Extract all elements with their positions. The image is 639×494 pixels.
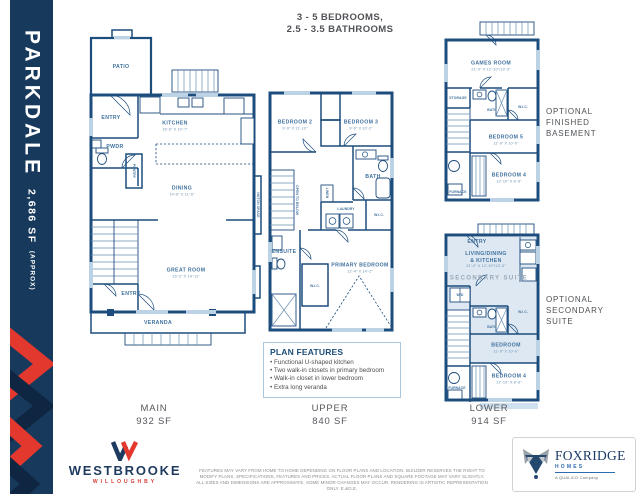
floor-name: MAIN xyxy=(114,402,194,415)
foxridge-homes-label: HOMES xyxy=(555,464,615,473)
plan-area-title: 2,686 SF (APPROX) xyxy=(26,189,38,291)
room-name: BEDROOM 4 xyxy=(492,172,527,179)
exterior-stairs xyxy=(480,22,534,35)
plan-name-title: PARKDALE xyxy=(20,30,44,177)
room-label-pantry: PANTRY xyxy=(132,164,136,178)
room-label-bath: BATH xyxy=(365,174,380,181)
room-label-open-to-below: OPEN TO BELOW xyxy=(295,185,299,215)
feature-item: Functional U-shaped kitchen xyxy=(270,359,394,367)
room-label-bedroom: BEDROOM 11'-9" X 10'-0" xyxy=(491,342,521,353)
room-label-wic: W.I.C. xyxy=(374,213,384,217)
qualico-label: A QUALICO Company xyxy=(555,475,626,480)
room-label-patio: PATIO xyxy=(113,64,130,71)
room-label-ensuite: ENSUITE xyxy=(272,249,297,256)
optional-line: SUITE xyxy=(546,316,604,327)
room-dims: 16'-2" X 14'-11" xyxy=(167,274,206,279)
optional-line: FINISHED xyxy=(546,117,596,128)
room-dims: 12'-4" X 14'-2" xyxy=(331,269,388,274)
room-label-hutch-space: HUTCH SPACE xyxy=(256,192,260,217)
room-dims: 21'-0" X 12'-10"/13'-3" xyxy=(471,67,511,72)
room-label-bedroom4: BEDROOM 4 12'-10" X 8'-6" xyxy=(492,373,527,384)
room-label-entry: ENTRY xyxy=(101,115,120,122)
room-dims: 9'-9" X 11'-10" xyxy=(278,126,313,131)
stairwell xyxy=(446,310,470,366)
room-label-storage: STORAGE xyxy=(449,96,466,100)
interior-stairs xyxy=(91,220,138,284)
foxridge-fox-icon xyxy=(522,448,550,482)
feature-item: Walk-in closet in lower bedroom xyxy=(270,375,394,383)
room-dims: 21'-0" X 12'-10"/13'-3" xyxy=(465,264,506,269)
room-label-bath: BATH xyxy=(487,108,497,112)
room-label-veranda: VERANDA xyxy=(144,320,172,327)
secondary-suite-plan: ENTRY LIVING/DINING & KITCHEN 21'-0" X 1… xyxy=(442,222,542,412)
room-dims: 12'-10" X 8'-6" xyxy=(492,179,527,184)
sidebar-band: PARKDALE 2,686 SF (APPROX) xyxy=(10,0,53,494)
room-label-laundry: LAUNDRY xyxy=(337,207,354,211)
floor-name: LOWER xyxy=(449,402,529,415)
laundry-machines xyxy=(326,214,353,228)
bedrooms-line: 3 - 5 BEDROOMS, xyxy=(248,12,432,24)
door-arcs xyxy=(104,95,154,310)
room-label-living-dining-kitchen: LIVING/DINING & KITCHEN 21'-0" X 12'-10"… xyxy=(465,251,506,269)
plan-features-box: PLAN FEATURES Functional U-shaped kitche… xyxy=(263,342,401,398)
optional-line: BASEMENT xyxy=(546,128,596,139)
ceiling-dash-lines xyxy=(326,276,392,328)
chevron-decoration xyxy=(10,328,53,494)
room-dims: 16'-6" X 10'-7" xyxy=(162,127,188,132)
westbrooke-w-icon xyxy=(106,440,144,461)
room-label-primary-bedroom: PRIMARY BEDROOM 12'-4" X 14'-2" xyxy=(331,262,388,273)
room-dims: 9'-9" X 10'-2" xyxy=(344,126,379,131)
main-floor-plan: PATIO ENTRY KITCHEN 16'-6" X 10'-7" PWDR… xyxy=(78,26,264,394)
plan-area-approx: (APPROX) xyxy=(29,251,36,291)
optional-basement-label: OPTIONAL FINISHED BASEMENT xyxy=(546,106,596,139)
room-label-dining: DINING 14'-6" X 11'-6" xyxy=(169,185,194,196)
plan-features-list: Functional U-shaped kitchen Two walk-in … xyxy=(270,359,394,392)
optional-suite-label: OPTIONAL SECONDARY SUITE xyxy=(546,294,604,327)
bedroom4-closet xyxy=(472,366,486,398)
westbrooke-wordmark: WESTBROOKE xyxy=(58,463,192,478)
exterior-stairs xyxy=(478,224,534,235)
foxridge-text-block: FOXRIDGE HOMES A QUALICO Company xyxy=(555,449,626,481)
stairwell xyxy=(446,108,470,152)
room-label-kitchen: KITCHEN 16'-6" X 10'-7" xyxy=(162,120,188,131)
room-name: BEDROOM 4 xyxy=(492,373,527,380)
room-label-pwdr: PWDR xyxy=(106,144,123,151)
room-label-wic: W.I.C. xyxy=(518,105,528,109)
room-name: BEDROOM 2 xyxy=(278,119,313,126)
room-dims: 12'-10" X 8'-6" xyxy=(492,380,527,385)
room-label-wic: W.I.C. xyxy=(518,310,528,314)
bathrooms-line: 2.5 - 3.5 BATHROOMS xyxy=(248,24,432,36)
room-name: GAMES ROOM xyxy=(471,60,511,67)
willoughby-label: WILLOUGHBY xyxy=(58,479,192,485)
upper-floor-area: UPPER 840 SF xyxy=(290,402,370,428)
room-label-furnace: FURNACE xyxy=(448,386,465,390)
foxridge-wordmark: FOXRIDGE xyxy=(555,449,626,463)
room-name: DINING xyxy=(169,185,194,192)
room-label-games-room: GAMES ROOM 21'-0" X 12'-10"/13'-3" xyxy=(471,60,511,71)
floor-area: 932 SF xyxy=(114,415,194,428)
room-label-bedroom3: BEDROOM 3 9'-9" X 10'-2" xyxy=(344,119,379,130)
floor-area: 914 SF xyxy=(449,415,529,428)
bedroom4-closet xyxy=(472,156,486,196)
room-name: BEDROOM 5 xyxy=(489,134,524,141)
room-label-bedroom4: BEDROOM 4 12'-10" X 8'-6" xyxy=(492,172,527,183)
optional-line: OPTIONAL xyxy=(546,294,604,305)
room-dims: 11'-9" X 10'-0" xyxy=(489,141,524,146)
room-label-linen: LINEN xyxy=(325,188,329,199)
room-name: LIVING/DINING xyxy=(465,251,506,258)
main-floor-plan-drawing xyxy=(78,26,264,394)
veranda-outline xyxy=(91,309,245,345)
floor-name: UPPER xyxy=(290,402,370,415)
disclaimer-text: FEATURES MAY VARY FROM HOME TO HOME DEPE… xyxy=(196,468,488,492)
upper-floor-plan: BEDROOM 2 9'-9" X 11'-10" BEDROOM 3 9'-9… xyxy=(268,88,396,334)
feature-item: Extra long veranda xyxy=(270,384,394,392)
exterior-stairs xyxy=(172,70,218,92)
room-label-great-room: GREAT ROOM 16'-2" X 14'-11" xyxy=(167,267,206,278)
feature-item: Two walk-in closets in primary bedroom xyxy=(270,367,394,375)
room-dims: 14'-6" X 11'-6" xyxy=(169,192,194,197)
room-label-entry2: ENTRY xyxy=(121,291,140,298)
main-floor-area: MAIN 932 SF xyxy=(114,402,194,428)
foxridge-logo-box: FOXRIDGE HOMES A QUALICO Company xyxy=(512,437,636,492)
plan-features-title: PLAN FEATURES xyxy=(270,347,394,357)
room-name: BEDROOM xyxy=(491,342,521,349)
room-label-bedroom5: BEDROOM 5 11'-9" X 10'-0" xyxy=(489,134,524,145)
room-label-entry: ENTRY xyxy=(467,239,486,246)
room-label-wd: W/D xyxy=(457,293,464,297)
optional-line: SECONDARY xyxy=(546,305,604,316)
room-name: KITCHEN xyxy=(162,120,188,127)
basement-floor-plan: GAMES ROOM 21'-0" X 12'-10"/13'-3" STORA… xyxy=(442,20,542,212)
room-label-bath: BATH xyxy=(487,325,497,329)
optional-line: OPTIONAL xyxy=(546,106,596,117)
room-label-bedroom2: BEDROOM 2 9'-9" X 11'-10" xyxy=(278,119,313,130)
room-name: PRIMARY BEDROOM xyxy=(331,262,388,269)
room-label-wic2: W.I.C. xyxy=(310,284,320,288)
floor-area: 840 SF xyxy=(290,415,370,428)
secondary-suite-banner: SECONDARY SUITE xyxy=(450,275,528,283)
room-name: GREAT ROOM xyxy=(167,267,206,274)
room-label-furnace: FURNACE xyxy=(449,190,466,194)
bedroom-closets xyxy=(321,93,340,146)
room-dims: 11'-9" X 10'-0" xyxy=(491,349,521,354)
room-name: BEDROOM 3 xyxy=(344,119,379,126)
bedrooms-bathrooms-header: 3 - 5 BEDROOMS, 2.5 - 3.5 BATHROOMS xyxy=(248,12,432,36)
patio-outline xyxy=(91,30,151,95)
kitchen-fixtures xyxy=(140,97,254,164)
plan-area-value: 2,686 SF xyxy=(26,189,38,244)
lower-floor-area: LOWER 914 SF xyxy=(449,402,529,428)
stairwell xyxy=(270,170,294,230)
